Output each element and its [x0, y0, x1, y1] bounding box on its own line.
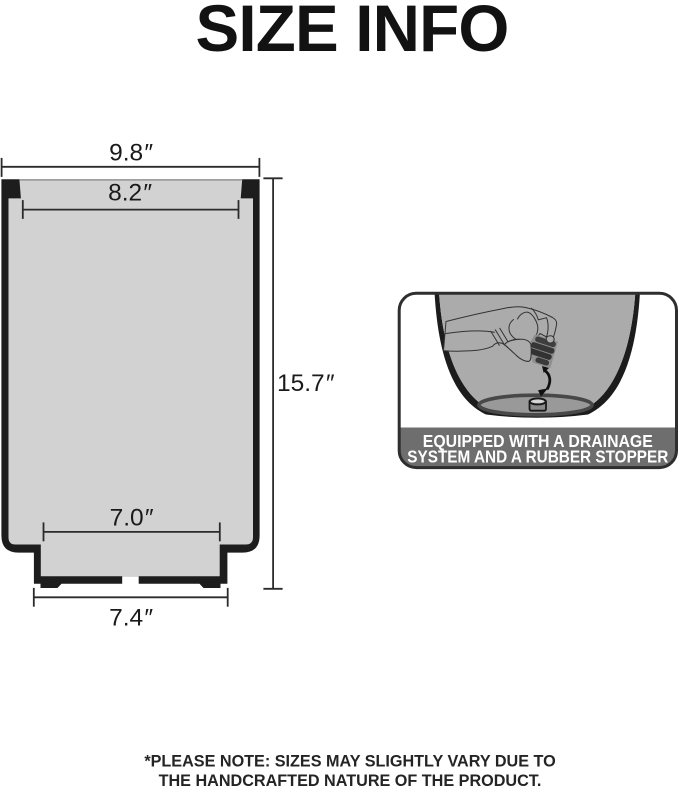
svg-text:SYSTEM AND A RUBBER STOPPER: SYSTEM AND A RUBBER STOPPER	[407, 446, 668, 466]
svg-text:THE HANDCRAFTED NATURE OF THE: THE HANDCRAFTED NATURE OF THE PRODUCT.	[159, 772, 542, 790]
svg-text:15.7″: 15.7″	[277, 370, 335, 397]
svg-text:7.0″: 7.0″	[110, 504, 154, 531]
svg-text:9.8″: 9.8″	[109, 140, 153, 167]
svg-text:8.2″: 8.2″	[108, 180, 152, 207]
svg-text:7.4″: 7.4″	[109, 604, 153, 631]
svg-text:*PLEASE NOTE: SIZES MAY SLIGHT: *PLEASE NOTE: SIZES MAY SLIGHTLY VARY DU…	[144, 753, 555, 771]
svg-text:SIZE INFO: SIZE INFO	[195, 0, 508, 65]
